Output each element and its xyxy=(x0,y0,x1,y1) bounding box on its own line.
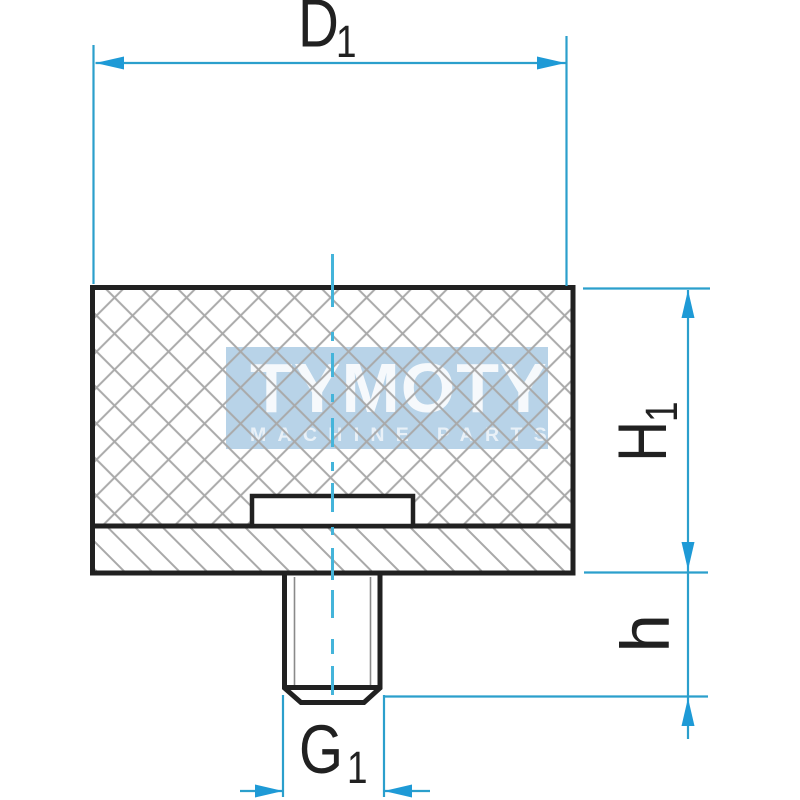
svg-text:1: 1 xyxy=(637,401,687,422)
svg-text:G: G xyxy=(299,712,343,789)
svg-text:1: 1 xyxy=(347,743,368,793)
svg-text:h: h xyxy=(607,614,684,652)
svg-text:H: H xyxy=(605,421,682,462)
svg-text:1: 1 xyxy=(336,17,357,67)
svg-text:D: D xyxy=(298,0,339,62)
